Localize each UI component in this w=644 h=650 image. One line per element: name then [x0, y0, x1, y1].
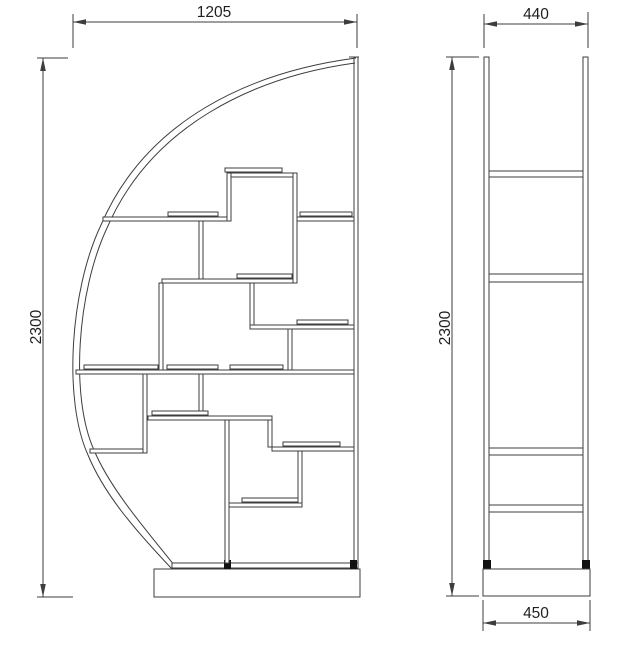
- shelf-lip: [225, 168, 282, 172]
- shelf-lip: [242, 498, 298, 502]
- side-outline: [483, 57, 590, 596]
- shelf-member: [90, 449, 147, 453]
- front-height-dimension: 2300: [28, 58, 73, 597]
- partition-member: [199, 221, 203, 279]
- shelf-lip: [168, 212, 218, 216]
- partition-member: [293, 173, 297, 283]
- shelf-lip: [237, 274, 292, 278]
- side-base-width-dimension: 450: [483, 600, 590, 631]
- arrowhead-bottom: [449, 583, 455, 596]
- front-view: 1205 2300: [28, 4, 360, 597]
- arrowhead-left: [483, 620, 496, 626]
- curved-side-outer-line: [73, 58, 356, 569]
- shelf-member: [227, 173, 297, 177]
- side-foot-right: [582, 560, 590, 569]
- partition-member: [225, 420, 229, 563]
- partition-member: [143, 374, 147, 453]
- arrowhead-left: [484, 21, 497, 27]
- arrowhead-right: [577, 620, 590, 626]
- shelf-lip: [300, 212, 352, 216]
- arrowhead-top: [40, 58, 46, 71]
- arrowhead-bottom: [40, 584, 46, 597]
- partition-member: [159, 283, 163, 370]
- shelf-member: [76, 370, 354, 374]
- partition-member: [268, 420, 272, 447]
- curved-side-inner-line: [80, 63, 355, 566]
- side-left-panel: [484, 57, 489, 561]
- shelf-member: [103, 217, 227, 221]
- front-width-dimension: 1205: [73, 4, 357, 48]
- arrowhead-right: [344, 19, 357, 25]
- partition-member: [288, 329, 292, 370]
- side-base-width-dimension-label: 450: [523, 605, 549, 622]
- technical-drawing-canvas: 1205 2300: [0, 0, 644, 650]
- arrowhead-left: [73, 19, 86, 25]
- side-top-width-dimension: 440: [484, 6, 588, 48]
- side-right-panel: [583, 57, 588, 561]
- side-foot-left: [483, 560, 491, 569]
- shelf-lip: [297, 320, 348, 324]
- side-height-dimension-label: 2300: [437, 310, 454, 345]
- partition-member: [298, 451, 302, 503]
- technical-drawing: 1205 2300: [0, 0, 644, 650]
- side-height-dimension: 2300: [437, 57, 479, 596]
- shelf-member: [162, 279, 297, 283]
- side-shelf-member: [489, 505, 583, 512]
- shelf-lip: [230, 365, 283, 369]
- shelf-member: [297, 217, 354, 221]
- front-foot-right: [350, 560, 357, 569]
- shelf-lip: [283, 442, 340, 446]
- bottom-shelf-member: [172, 563, 358, 568]
- front-base-plinth: [154, 569, 360, 597]
- side-view: 440 2300: [437, 6, 590, 631]
- arrowhead-top: [449, 57, 455, 70]
- side-shelf-member: [489, 274, 583, 282]
- arrowhead-right: [575, 21, 588, 27]
- partition-member: [227, 173, 231, 221]
- front-shelves: [76, 173, 354, 507]
- side-shelf-member: [489, 171, 583, 177]
- shelf-member: [228, 503, 302, 507]
- shelf-member: [272, 447, 354, 451]
- shelf-lip: [152, 411, 208, 415]
- front-height-dimension-label: 2300: [28, 309, 45, 344]
- side-top-width-dimension-label: 440: [523, 6, 549, 23]
- side-shelf-member: [489, 448, 583, 455]
- front-width-dimension-label: 1205: [197, 4, 231, 21]
- shelf-member: [148, 416, 272, 420]
- shelf-member: [250, 325, 354, 329]
- partition-member: [250, 283, 254, 325]
- shelf-lip: [167, 365, 218, 369]
- partition-member: [199, 374, 203, 416]
- shelf-lip: [84, 365, 158, 369]
- side-base-plinth: [483, 569, 590, 596]
